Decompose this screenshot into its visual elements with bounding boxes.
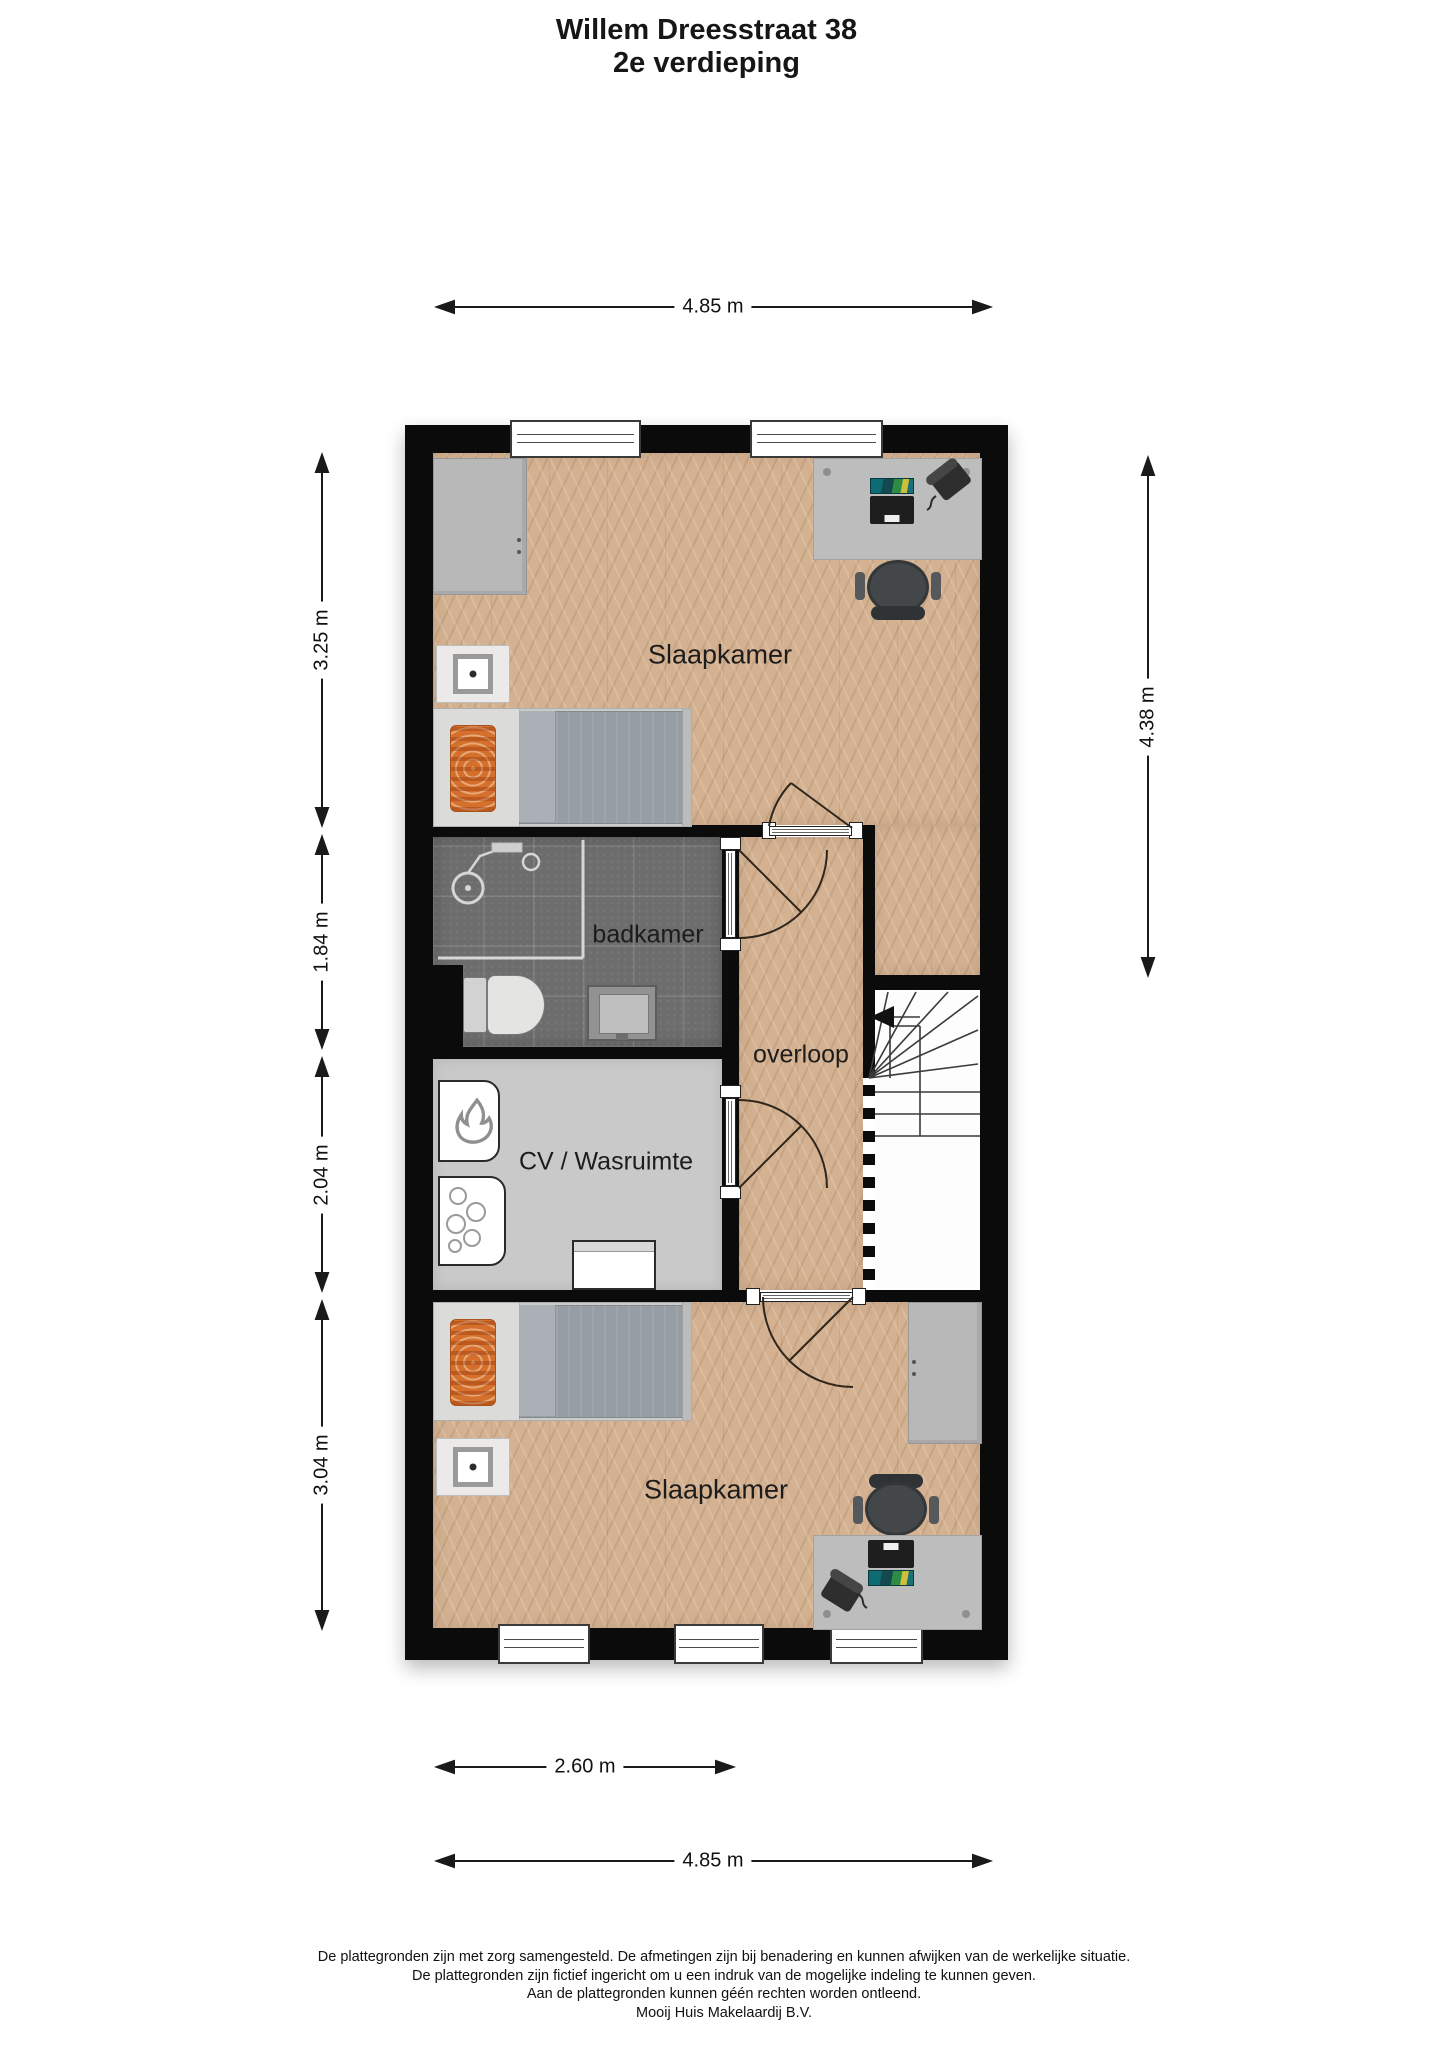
lamp-icon — [453, 1447, 493, 1487]
wall-landing-stairs — [863, 825, 875, 1078]
nightstand — [436, 645, 510, 703]
wall-exterior-right — [980, 425, 1008, 1660]
office-chair — [865, 1482, 927, 1536]
wardrobe — [908, 1302, 982, 1444]
disclaimer-line: Aan de plattegronden kunnen géén rechten… — [0, 1985, 1448, 2004]
floor-plan-page: Willem Dreesstraat 38 2e verdieping — [0, 0, 1448, 2048]
wall-utility-bedroom-bottom — [433, 1290, 760, 1302]
window — [498, 1624, 590, 1664]
bed-sheet-fold — [519, 1305, 556, 1416]
dimension-top-width: 4.85 m — [674, 296, 751, 319]
disclaimer: De plattegronden zijn met zorg samengest… — [0, 1948, 1448, 2022]
laptop-icon — [868, 1540, 914, 1586]
wall-stairs-top — [863, 975, 980, 990]
room-bedroom-top-floor-extension — [873, 825, 980, 975]
door-jamb — [720, 1085, 741, 1098]
office-chair-back — [871, 606, 925, 620]
dimension-bottom-inner: 2.60 m — [546, 1756, 623, 1779]
wall-landing-bedroom-bottom — [855, 1290, 980, 1302]
bed — [433, 708, 692, 827]
wardrobe — [433, 458, 527, 595]
window — [674, 1624, 764, 1664]
wardrobe-handle — [517, 538, 521, 542]
bed-footboard — [682, 1303, 691, 1420]
office-chair-armrest — [853, 1496, 863, 1524]
bed — [433, 1302, 692, 1421]
stairs-balustrade — [863, 1085, 875, 1290]
wall-bathroom-utility — [433, 1047, 722, 1059]
office-chair-armrest — [929, 1496, 939, 1524]
door-jamb — [720, 938, 741, 951]
disclaimer-line: Mooij Huis Makelaardij B.V. — [0, 2004, 1448, 2023]
staircase — [875, 990, 980, 1290]
bed-pillow — [450, 725, 496, 812]
wall-exterior-top — [405, 425, 1008, 453]
expansion-vessel-icon — [438, 1176, 506, 1266]
door-bedroom-top — [769, 826, 852, 836]
window — [750, 420, 883, 458]
room-label-bathroom: badkamer — [592, 921, 703, 950]
room-label-bedroom-bottom: Slaapkamer — [644, 1475, 788, 1506]
laptop-icon — [870, 478, 914, 524]
dimension-left-bottom: 3.04 m — [311, 1426, 334, 1503]
wardrobe-handle — [912, 1360, 916, 1364]
door-jamb — [720, 837, 741, 850]
door-jamb — [720, 1186, 741, 1199]
nightstand — [436, 1438, 510, 1496]
dimension-left-top: 3.25 m — [311, 601, 334, 678]
window — [830, 1624, 923, 1664]
door-jamb — [852, 1288, 866, 1305]
room-label-landing: overloop — [753, 1041, 849, 1070]
room-label-bedroom-top: Slaapkamer — [648, 640, 792, 671]
door-utility — [725, 1098, 736, 1186]
room-label-utility: CV / Wasruimte — [519, 1148, 693, 1177]
office-chair-armrest — [931, 572, 941, 600]
dimension-bottom-width: 4.85 m — [674, 1850, 751, 1873]
disclaimer-line: De plattegronden zijn met zorg samengest… — [0, 1948, 1448, 1967]
toilet-icon — [463, 977, 487, 1033]
bed-footboard — [682, 709, 691, 826]
bed-pillow — [450, 1319, 496, 1406]
desk-screw — [823, 468, 831, 476]
door-bathroom — [725, 850, 736, 938]
boiler-icon — [438, 1080, 500, 1162]
door-jamb — [746, 1288, 760, 1305]
disclaimer-line: De plattegronden zijn fictief ingericht … — [0, 1967, 1448, 1986]
wall-toilet-stub — [433, 965, 463, 1047]
washing-machine-icon — [572, 1240, 656, 1290]
desk-screw — [962, 1610, 970, 1618]
window — [510, 420, 641, 458]
dimension-right-height: 4.38 m — [1137, 678, 1160, 755]
washbasin-icon — [587, 985, 657, 1041]
toilet-bowl — [487, 975, 545, 1035]
office-chair-armrest — [855, 572, 865, 600]
wardrobe-handle — [912, 1372, 916, 1376]
dimension-left-lower-mid: 2.04 m — [311, 1136, 334, 1213]
bed-sheet-fold — [519, 711, 556, 822]
lamp-icon — [453, 654, 493, 694]
wall-exterior-left — [405, 425, 433, 1660]
wardrobe-handle — [517, 550, 521, 554]
desk-screw — [823, 1610, 831, 1618]
dimension-left-upper-mid: 1.84 m — [311, 903, 334, 980]
door-bedroom-bottom — [760, 1292, 853, 1302]
